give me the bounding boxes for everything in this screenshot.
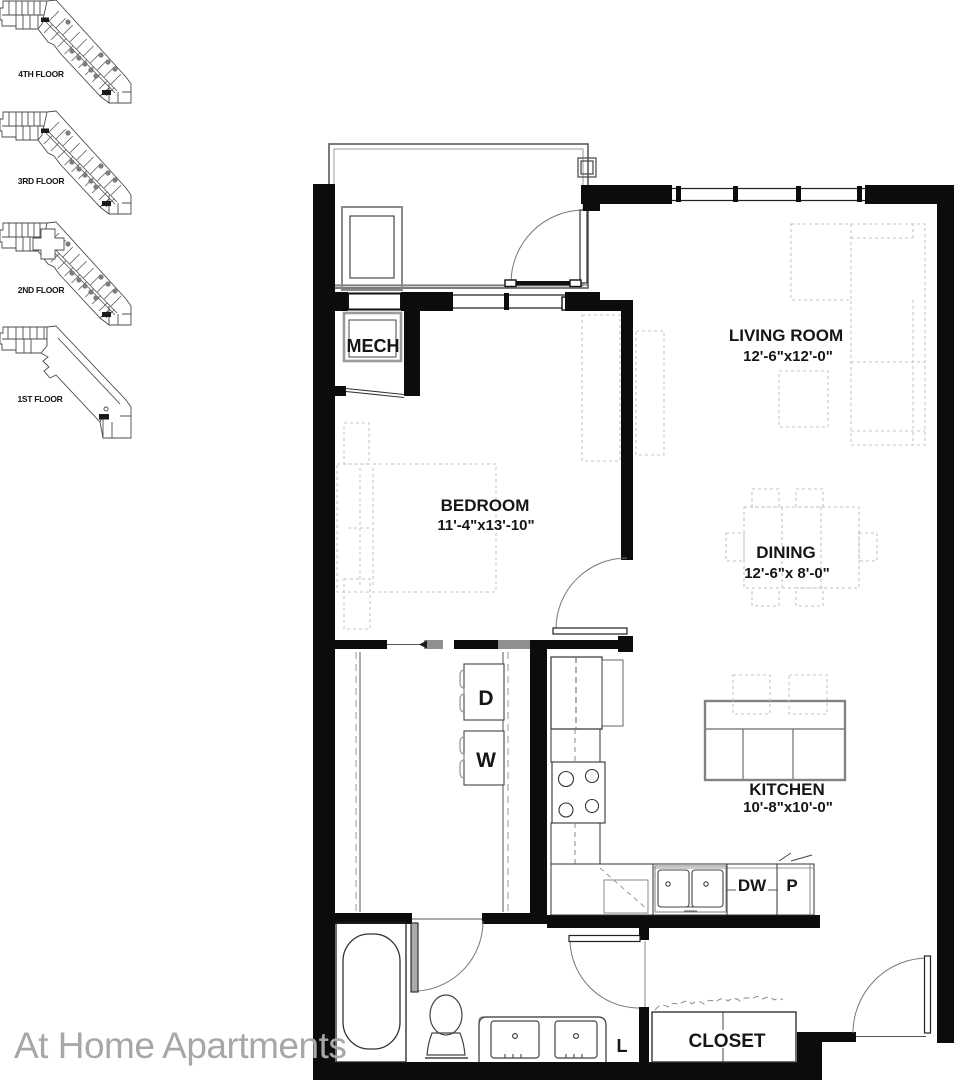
svg-text:MECH: MECH (347, 336, 400, 356)
svg-text:LIVING ROOM: LIVING ROOM (729, 326, 843, 345)
svg-text:KITCHEN: KITCHEN (749, 780, 825, 799)
svg-text:10'-8"x10'-0": 10'-8"x10'-0" (743, 799, 833, 816)
svg-text:L: L (617, 1036, 628, 1056)
svg-text:4TH FLOOR: 4TH FLOOR (18, 69, 64, 79)
svg-text:12'-6"x 8'-0": 12'-6"x 8'-0" (744, 565, 830, 582)
svg-text:BEDROOM: BEDROOM (441, 496, 530, 515)
svg-text:At Home Apartments: At Home Apartments (14, 1025, 346, 1066)
svg-text:1ST FLOOR: 1ST FLOOR (18, 394, 63, 404)
svg-text:3RD FLOOR: 3RD FLOOR (18, 176, 65, 186)
svg-text:DW: DW (738, 876, 767, 895)
svg-text:2ND FLOOR: 2ND FLOOR (18, 285, 65, 295)
svg-text:CLOSET: CLOSET (688, 1031, 765, 1052)
svg-text:12'-6"x12'-0": 12'-6"x12'-0" (743, 348, 833, 365)
svg-text:W: W (476, 749, 496, 772)
svg-text:P: P (786, 876, 797, 895)
svg-text:D: D (478, 687, 493, 710)
svg-text:DINING: DINING (756, 543, 816, 562)
svg-text:11'-4"x13'-10": 11'-4"x13'-10" (437, 517, 534, 534)
